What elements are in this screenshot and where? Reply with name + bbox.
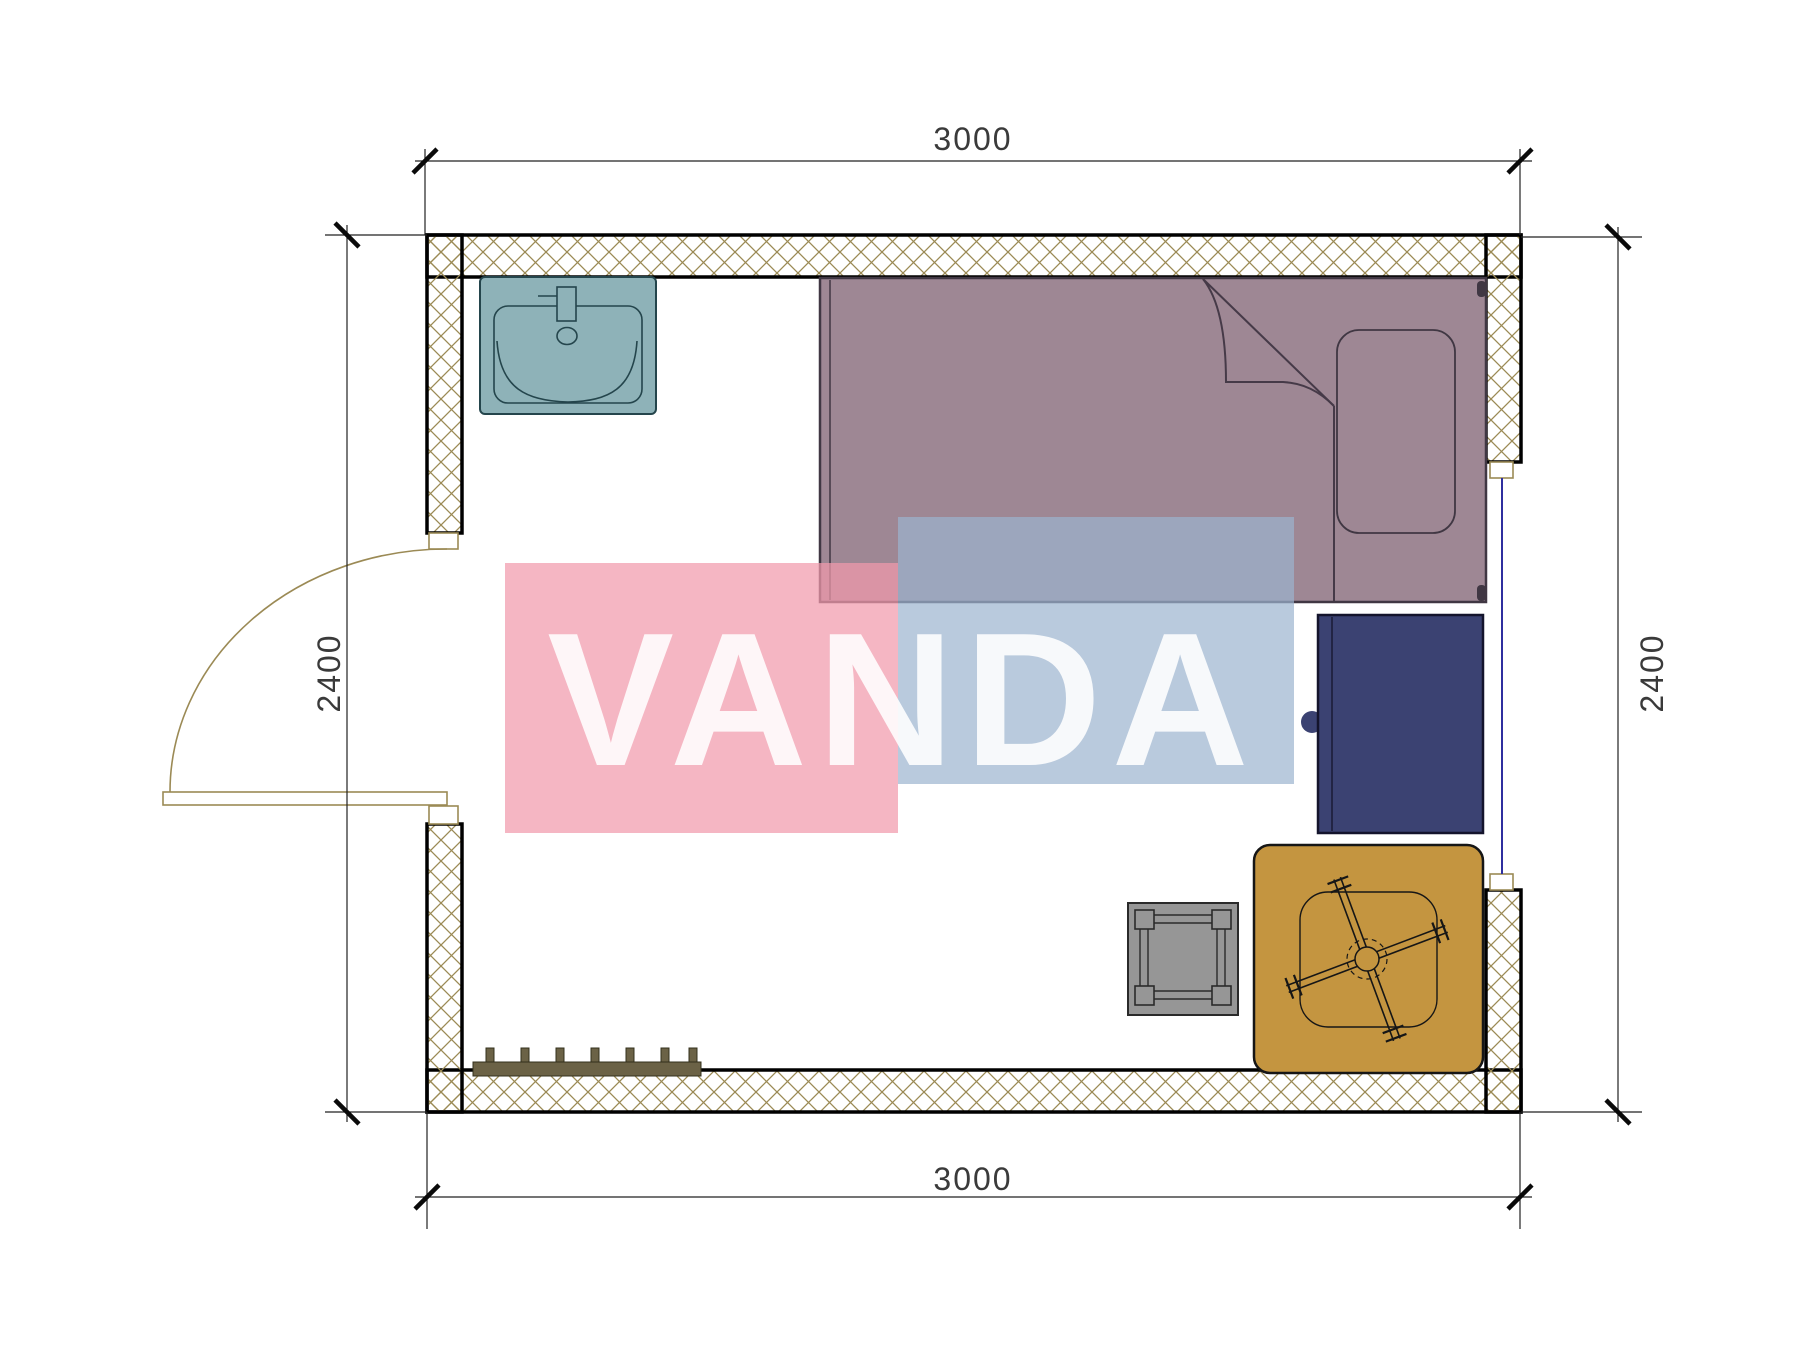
- watermark: VANDA: [505, 517, 1294, 833]
- floor-plan-page: 3000 3000 2400 2400 VANDA: [0, 0, 1800, 1350]
- table-cross-hub: [1355, 947, 1379, 971]
- watermark-text: VANDA: [547, 594, 1258, 806]
- window-jamb-bottom: [1490, 874, 1513, 890]
- bed-post-top: [1477, 281, 1486, 297]
- dim-label-top: 3000: [933, 121, 1012, 157]
- door-jamb-top: [429, 533, 458, 549]
- wall-left-lower: [427, 824, 462, 1112]
- window-jamb-top: [1490, 462, 1513, 478]
- stool-symbol: [1128, 903, 1238, 1015]
- door-jamb-bottom: [429, 806, 458, 824]
- floor-plan-canvas: 3000 3000 2400 2400 VANDA: [0, 0, 1800, 1350]
- dim-label-right: 2400: [1634, 633, 1670, 712]
- wall-top: [427, 235, 1521, 277]
- wall-right-lower: [1486, 890, 1521, 1112]
- wall-right-upper: [1486, 235, 1521, 462]
- dim-label-bottom: 3000: [933, 1161, 1012, 1197]
- radiator-body: [473, 1062, 701, 1076]
- sink-symbol: [480, 277, 656, 414]
- wall-left-upper: [427, 235, 462, 533]
- bed-post-bottom: [1477, 585, 1486, 601]
- wardrobe-body: [1318, 615, 1483, 833]
- door-leaf: [163, 792, 447, 805]
- dim-label-left: 2400: [311, 633, 347, 712]
- wardrobe-symbol: [1301, 615, 1483, 833]
- sink-faucet: [557, 287, 576, 321]
- table-symbol: [1254, 845, 1483, 1073]
